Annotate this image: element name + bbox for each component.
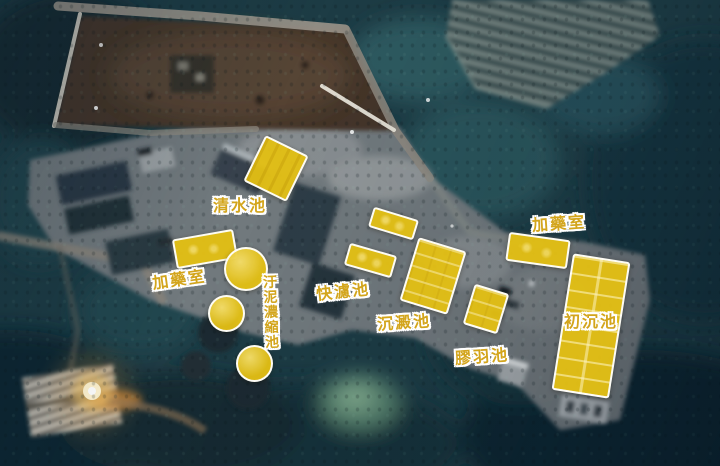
label-sludge-thickening-tanks: 汙泥濃縮池 <box>262 274 279 349</box>
highlight-sludge-thickening-tank-2[interactable] <box>208 295 245 332</box>
highlight-sludge-thickening-tank-3[interactable] <box>236 345 273 382</box>
label-flocculation-pool: 膠羽池 <box>454 341 510 369</box>
satellite-map[interactable]: 清水池 加藥室 汙泥濃縮池 快濾池 沉澱池 膠羽池 加藥室 初沉池 <box>0 0 720 466</box>
label-primary-sedimentation-pool: 初沉池 <box>564 308 618 332</box>
label-chemical-dosing-room-east: 加藥室 <box>531 208 587 236</box>
satellite-background-image <box>0 0 720 466</box>
label-sedimentation-pool: 沉澱池 <box>376 307 432 335</box>
label-clear-water-pool: 清水池 <box>213 192 267 216</box>
